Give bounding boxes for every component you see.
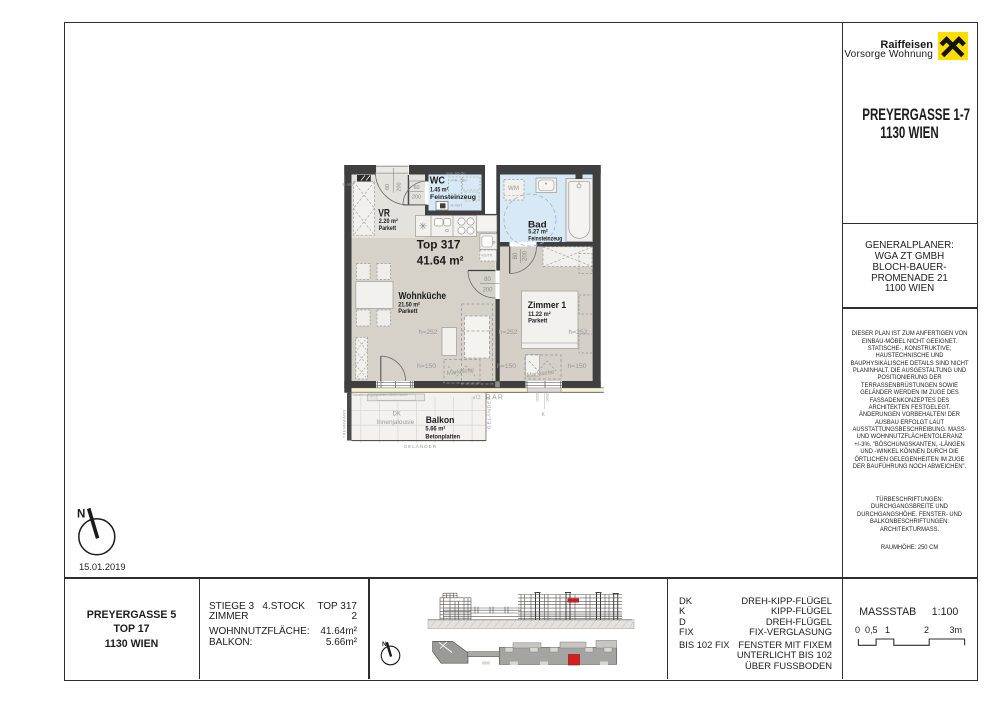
svg-text:200: 200: [482, 288, 493, 294]
svg-text:✳: ✳: [419, 222, 427, 233]
svg-text:RAR: RAR: [486, 395, 504, 402]
svg-text:Innenjalousie: Innenjalousie: [377, 420, 415, 426]
svg-text:80: 80: [385, 184, 391, 190]
svg-text:Parkett: Parkett: [379, 226, 396, 232]
svg-text:Parkett: Parkett: [398, 309, 417, 315]
svg-text:Betonplatten: Betonplatten: [425, 434, 460, 440]
svg-text:Feinsteinzeug: Feinsteinzeug: [528, 236, 562, 243]
svg-text:h=150: h=150: [568, 363, 587, 370]
svg-text:KS/TK: KS/TK: [482, 254, 493, 258]
svg-text:Wohnküche: Wohnküche: [399, 291, 447, 302]
svg-text:h=150: h=150: [417, 363, 436, 370]
svg-text:11.22 m²: 11.22 m²: [528, 311, 551, 318]
svg-text:N: N: [77, 509, 85, 521]
svg-text:h=150: h=150: [497, 363, 516, 370]
svg-text:N: N: [382, 641, 387, 648]
svg-text:Parkett: Parkett: [528, 319, 547, 325]
svg-text:200: 200: [397, 182, 403, 191]
svg-text:Top 317: Top 317: [417, 238, 461, 252]
svg-text:Balkon: Balkon: [426, 414, 455, 425]
svg-text:H-Vert: H-Vert: [451, 203, 463, 208]
svg-text:60: 60: [413, 185, 419, 191]
svg-text:Schattierungslamellen 02/29 02: Schattierungslamellen 02/29 02/29: [352, 393, 407, 397]
svg-text:200: 200: [412, 195, 421, 201]
svg-text:1.45 m²: 1.45 m²: [430, 187, 448, 194]
svg-text:h=252: h=252: [419, 329, 438, 336]
svg-text:DK: DK: [393, 412, 401, 418]
svg-text:02/29: 02/29: [535, 391, 540, 402]
svg-text:WC: WC: [430, 175, 445, 186]
svg-text:GELÄNDER: GELÄNDER: [404, 443, 438, 450]
svg-text:E-Vert: E-Vert: [343, 182, 355, 187]
svg-text:WM: WM: [508, 185, 519, 192]
svg-text:Feinsteinzeug: Feinsteinzeug: [430, 194, 476, 201]
svg-text:h=252: h=252: [569, 329, 588, 336]
svg-text:h=252: h=252: [499, 329, 518, 336]
svg-text:VR: VR: [378, 207, 390, 219]
svg-text:Spü 38+50: Spü 38+50: [446, 171, 466, 176]
svg-text:200: 200: [523, 250, 529, 261]
svg-text:21.50 m²: 21.50 m²: [398, 301, 420, 308]
svg-text:Zimmer 1: Zimmer 1: [528, 300, 567, 311]
svg-text:5.66 m²: 5.66 m²: [425, 426, 445, 433]
svg-text:TRENNWAND: TRENNWAND: [342, 409, 346, 438]
svg-text:80: 80: [513, 252, 519, 259]
svg-text:+FB -150: +FB -150: [450, 178, 467, 183]
svg-text:Bad: Bad: [528, 219, 547, 230]
svg-text:2.20 m²: 2.20 m²: [379, 218, 398, 225]
svg-text:02/29: 02/29: [545, 391, 550, 402]
svg-text:41.64 m²: 41.64 m²: [417, 253, 464, 267]
svg-text:K: K: [542, 412, 546, 418]
svg-text:80: 80: [484, 277, 491, 283]
